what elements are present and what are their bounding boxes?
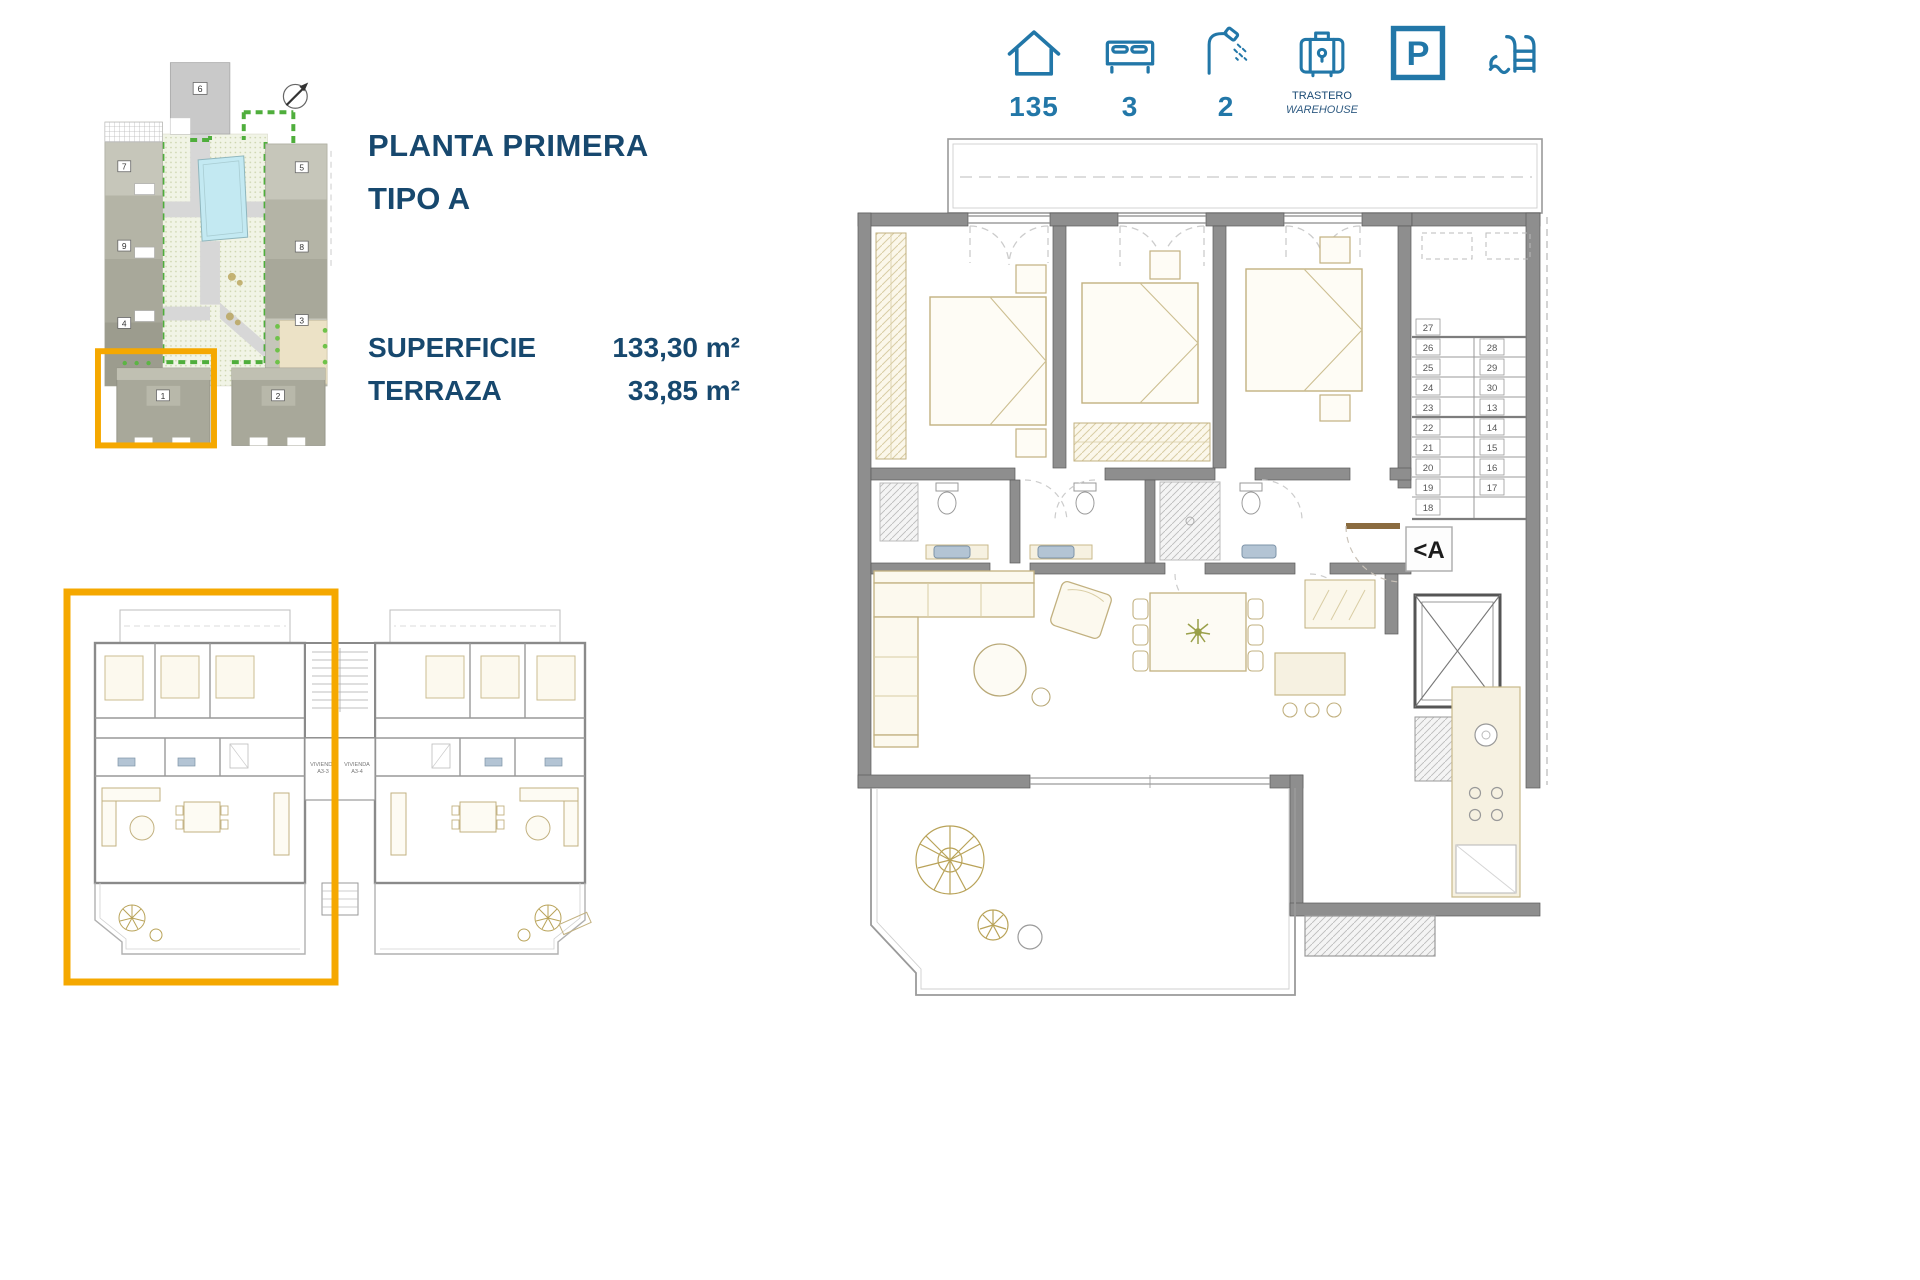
site-plan: 6 7 9 4 [95, 55, 333, 460]
dining-area [1133, 593, 1263, 671]
spec-pool [1478, 20, 1550, 123]
svg-text:14: 14 [1487, 423, 1498, 434]
svg-text:1: 1 [161, 391, 166, 401]
svg-text:15: 15 [1487, 443, 1498, 454]
svg-text:23: 23 [1423, 403, 1434, 414]
svg-text:30: 30 [1487, 383, 1498, 394]
svg-text:28: 28 [1487, 343, 1498, 354]
svg-text:6: 6 [198, 84, 203, 94]
spec-parking: P [1382, 20, 1454, 123]
bathroom-2 [1030, 483, 1096, 559]
site-building-1: 1 [117, 361, 210, 445]
upper-terrace [948, 139, 1542, 213]
kitchen [1275, 653, 1520, 897]
spec-surface: 135 [998, 20, 1070, 123]
terrace-table [1018, 925, 1042, 949]
bedroom-3 [1246, 237, 1362, 421]
warehouse-icon [1291, 20, 1353, 82]
svg-text:2: 2 [276, 391, 281, 401]
svg-text:25: 25 [1423, 363, 1434, 374]
svg-text:A3-3: A3-3 [317, 769, 329, 775]
svg-text:21: 21 [1423, 443, 1434, 454]
bedrooms-value: 3 [1122, 91, 1139, 123]
svg-text:22: 22 [1423, 423, 1434, 434]
site-buildings-left: 7 9 4 [105, 122, 163, 386]
svg-text:18: 18 [1423, 503, 1434, 514]
shower-icon [1199, 20, 1253, 82]
site-building-6: 6 [170, 63, 230, 134]
entrance-marker: <A [1413, 537, 1444, 564]
svg-text:20: 20 [1423, 463, 1434, 474]
svg-text:5: 5 [299, 163, 304, 173]
svg-text:A3-4: A3-4 [351, 769, 363, 775]
spec-bar: 135 3 [998, 20, 1550, 123]
key-plan-right-unit [375, 610, 585, 954]
storage-label: TRASTERO WAREHOUSE [1286, 89, 1358, 118]
svg-text:3: 3 [299, 315, 304, 325]
svg-text:27: 27 [1423, 323, 1434, 334]
bed-icon [1099, 20, 1161, 82]
bedroom-2 [1074, 251, 1210, 461]
staircase: 27 26 25 24 23 22 21 20 19 18 28 29 30 1… [1412, 233, 1530, 519]
svg-text:9: 9 [122, 241, 127, 251]
storage-label-en: WAREHOUSE [1286, 103, 1358, 117]
bedroom-1 [876, 233, 1046, 459]
pool-icon [1484, 20, 1544, 82]
rear-balcony [1305, 916, 1435, 956]
svg-text:13: 13 [1487, 403, 1498, 414]
svg-text:4: 4 [122, 318, 127, 328]
svg-text:26: 26 [1423, 343, 1434, 354]
surface-area-value: 133,30 m² [612, 332, 740, 364]
parking-letter: P [1407, 35, 1430, 73]
bathroom-3 [1160, 482, 1276, 560]
spec-storage: TRASTERO WAREHOUSE [1286, 20, 1358, 123]
entrance-door [1346, 523, 1400, 529]
svg-text:17: 17 [1487, 483, 1498, 494]
key-plan-left-unit [95, 610, 305, 954]
terrace-trees [916, 826, 1008, 940]
bathrooms-value: 2 [1218, 91, 1235, 123]
surface-row: SUPERFICIE 133,30 m² [368, 332, 740, 364]
site-courtyard [160, 134, 267, 386]
svg-text:8: 8 [299, 242, 304, 252]
site-buildings-right: 5 8 3 [266, 144, 328, 386]
svg-text:29: 29 [1487, 363, 1498, 374]
terrace-row: TERRAZA 33,85 m² [368, 375, 740, 407]
house-icon [1005, 20, 1063, 82]
area-table: SUPERFICIE 133,30 m² TERRAZA 33,85 m² [368, 332, 740, 418]
parking-icon: P [1389, 20, 1447, 82]
storage-label-es: TRASTERO [1292, 90, 1352, 102]
svg-text:19: 19 [1423, 483, 1434, 494]
surface-label: SUPERFICIE [368, 332, 536, 364]
page-subtitle: TIPO A [368, 181, 649, 217]
spec-bedrooms: 3 [1094, 20, 1166, 123]
surface-value: 135 [1009, 91, 1059, 123]
terrace-area-value: 33,85 m² [628, 375, 740, 407]
key-plan: VIVIENDA A3-3 VIVIENDA A3-4 [60, 588, 620, 1010]
page-title: PLANTA PRIMERA [368, 128, 649, 164]
svg-text:7: 7 [122, 162, 127, 172]
main-floor-plan: 27 26 25 24 23 22 21 20 19 18 28 29 30 1… [850, 125, 1550, 1055]
svg-text:VIVIENDA: VIVIENDA [344, 762, 370, 768]
floorplan-sheet: 135 3 [0, 0, 1920, 1280]
svg-text:16: 16 [1487, 463, 1498, 474]
terrace-label: TERRAZA [368, 375, 502, 407]
bathroom-1 [880, 483, 988, 559]
compass-icon [283, 82, 308, 108]
key-plan-stair-core: VIVIENDA A3-3 VIVIENDA A3-4 [305, 643, 375, 915]
svg-text:24: 24 [1423, 383, 1434, 394]
spec-bathrooms: 2 [1190, 20, 1262, 123]
site-building-2: 2 [232, 368, 325, 445]
living-room [874, 571, 1113, 747]
lower-terrace [871, 788, 1295, 995]
plan-heading: PLANTA PRIMERA TIPO A [368, 128, 649, 217]
